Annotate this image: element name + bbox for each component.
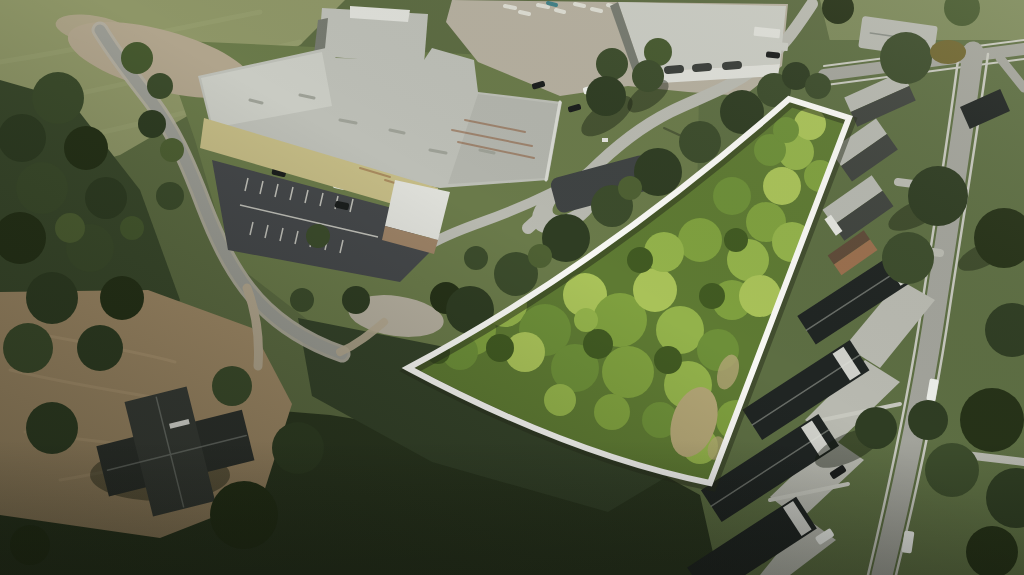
aerial-photo <box>0 0 1024 575</box>
aerial-photo-canvas <box>0 0 1024 575</box>
bottom-shade-overlay <box>0 440 1024 575</box>
